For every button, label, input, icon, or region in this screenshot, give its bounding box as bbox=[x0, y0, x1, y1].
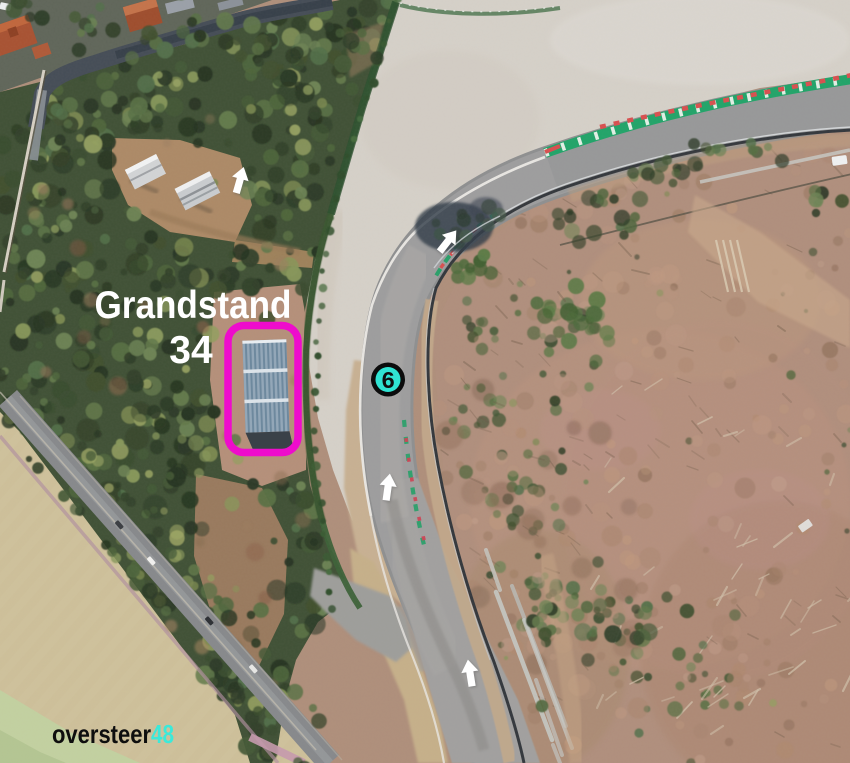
svg-text:Grandstand: Grandstand bbox=[95, 284, 292, 327]
svg-text:oversteer: oversteer bbox=[52, 719, 151, 749]
svg-text:34: 34 bbox=[169, 329, 213, 372]
svg-text:6: 6 bbox=[382, 367, 395, 393]
svg-text:48: 48 bbox=[151, 719, 174, 749]
